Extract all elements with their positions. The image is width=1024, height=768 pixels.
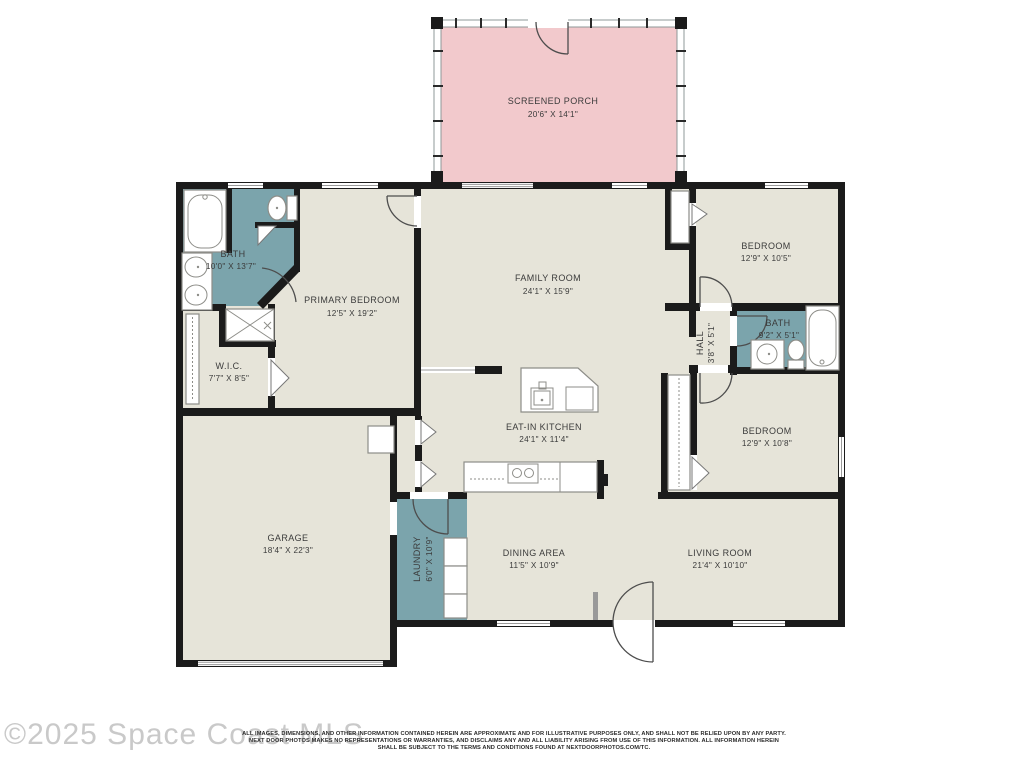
room-label-eat-in-kitchen: EAT-IN KITCHEN (506, 422, 582, 432)
room-dims-primary-bath: 10'0" X 13'7" (206, 262, 256, 271)
room-label-wic: W.I.C. (216, 361, 243, 371)
room-label-bedroom-1: BEDROOM (741, 241, 790, 251)
room-dims-bedroom-1: 12'9" X 10'5" (741, 254, 791, 263)
window (497, 621, 550, 626)
room-label-family-room: FAMILY ROOM (515, 273, 581, 283)
kitchen-counter (464, 462, 597, 492)
primary-bathtub (184, 190, 226, 252)
room-dims-screened-porch: 20'6" X 14'1" (528, 110, 578, 119)
room-label-living-room: LIVING ROOM (688, 548, 752, 558)
room-dims-eat-in-kitchen: 24'1" X 11'4" (519, 435, 569, 444)
room-dims-dining-area: 11'5" X 10'9" (509, 561, 559, 570)
bedroom1-closet-interior (671, 191, 689, 243)
disclaimer-line-1: ALL IMAGES, DIMENSIONS, AND OTHER INFORM… (242, 731, 786, 737)
hall-bath-toilet (788, 340, 804, 369)
room-dims-wic: 7'7" X 8'5" (209, 374, 249, 383)
pass-through-window (421, 367, 475, 373)
window (839, 437, 844, 477)
room-dims-garage: 18'4" X 22'3" (263, 546, 313, 555)
room-dims-hall-bath: 9'2" X 5'1" (759, 331, 799, 340)
room-dims-family-room: 24'1" X 15'9" (523, 287, 573, 296)
bedroom2-closet-rod (668, 375, 690, 490)
water-heater (368, 426, 394, 453)
disclaimer-line-3: SHALL BE SUBJECT TO THE TERMS AND CONDIT… (378, 745, 651, 751)
window (733, 621, 785, 626)
wic-closet-rod (186, 314, 199, 404)
room-label-hall: HALL (695, 331, 705, 355)
room-dims-laundry: 6'0" X 10'9" (425, 536, 434, 581)
entry-wall-stub (593, 592, 598, 620)
room-label-primary-bedroom: PRIMARY BEDROOM (304, 295, 400, 305)
room-label-laundry: LAUNDRY (412, 536, 422, 582)
primary-toilet (268, 196, 297, 220)
window (228, 183, 263, 188)
disclaimer-line-2: NEXT DOOR PHOTOS MAKES NO REPRESENTATION… (249, 738, 779, 744)
room-dims-living-room: 21'4" X 10'10" (692, 561, 747, 570)
floor-plan-canvas: SCREENED PORCH 20'6" X 14'1" FAMILY ROOM… (0, 0, 1024, 768)
room-label-bedroom-2: BEDROOM (742, 426, 791, 436)
shower (226, 309, 274, 341)
window (765, 183, 808, 188)
room-label-primary-bath: BATH (221, 249, 246, 259)
washer-dryer (444, 538, 467, 618)
hall-bath-sink (751, 340, 784, 369)
room-label-hall-bath: BATH (766, 318, 791, 328)
room-label-dining-area: DINING AREA (503, 548, 565, 558)
garage-door (198, 661, 383, 666)
hall-bathtub (806, 306, 839, 370)
room-dims-hall: 3'8" X 5'1" (707, 323, 716, 363)
room-dims-primary-bedroom: 12'5" X 19'2" (327, 309, 377, 318)
room-dims-bedroom-2: 12'9" X 10'8" (742, 439, 792, 448)
window (322, 183, 378, 188)
sliding-door (462, 183, 533, 188)
room-label-garage: GARAGE (268, 533, 309, 543)
window (612, 183, 647, 188)
room-label-screened-porch: SCREENED PORCH (508, 96, 599, 106)
